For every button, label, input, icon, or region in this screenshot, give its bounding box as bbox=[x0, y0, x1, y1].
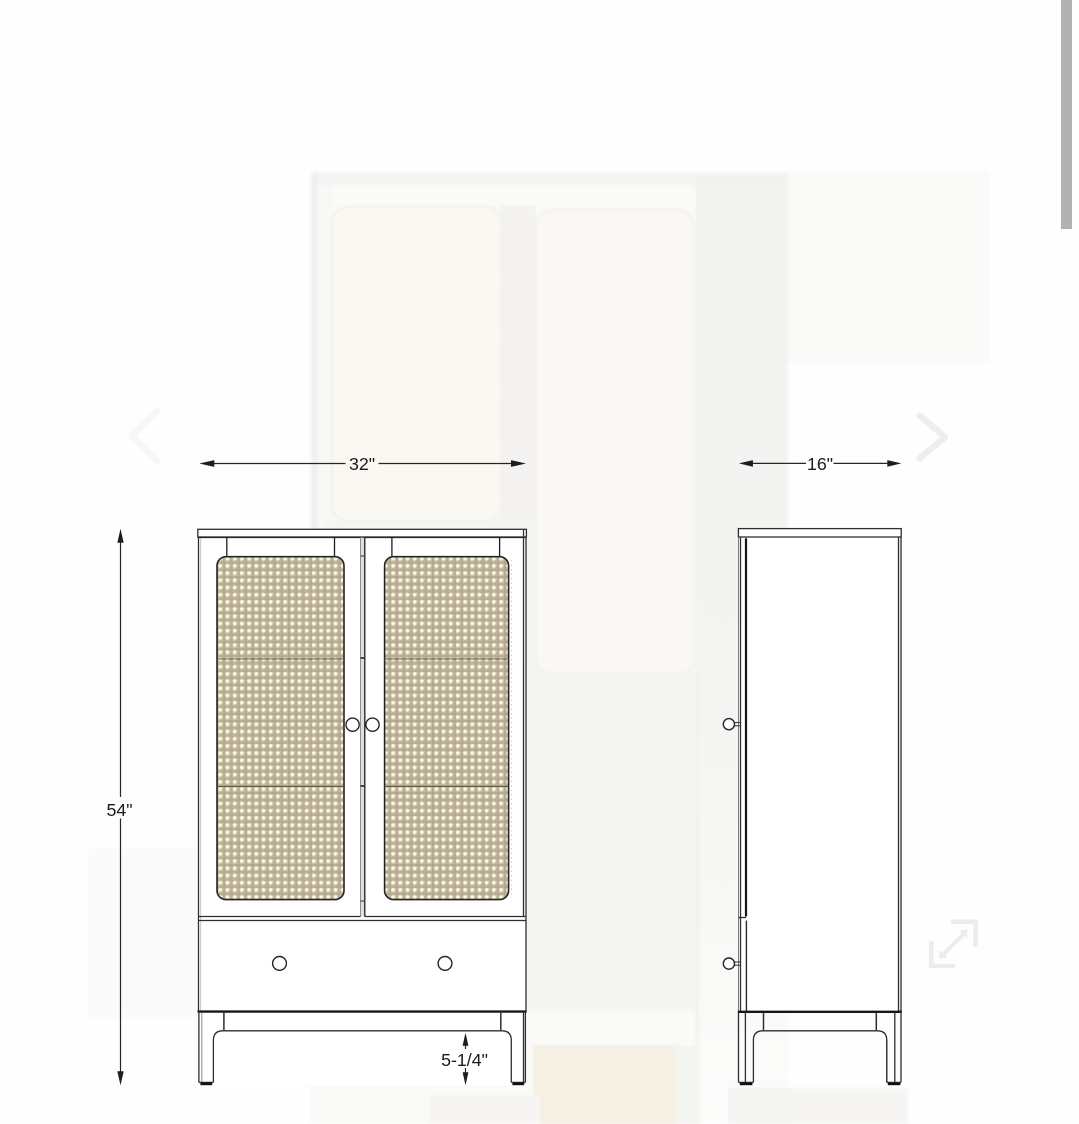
svg-text:54": 54" bbox=[106, 800, 132, 820]
svg-text:16": 16" bbox=[807, 454, 833, 474]
svg-text:32": 32" bbox=[349, 454, 375, 474]
svg-text:5-1/4": 5-1/4" bbox=[441, 1050, 488, 1070]
